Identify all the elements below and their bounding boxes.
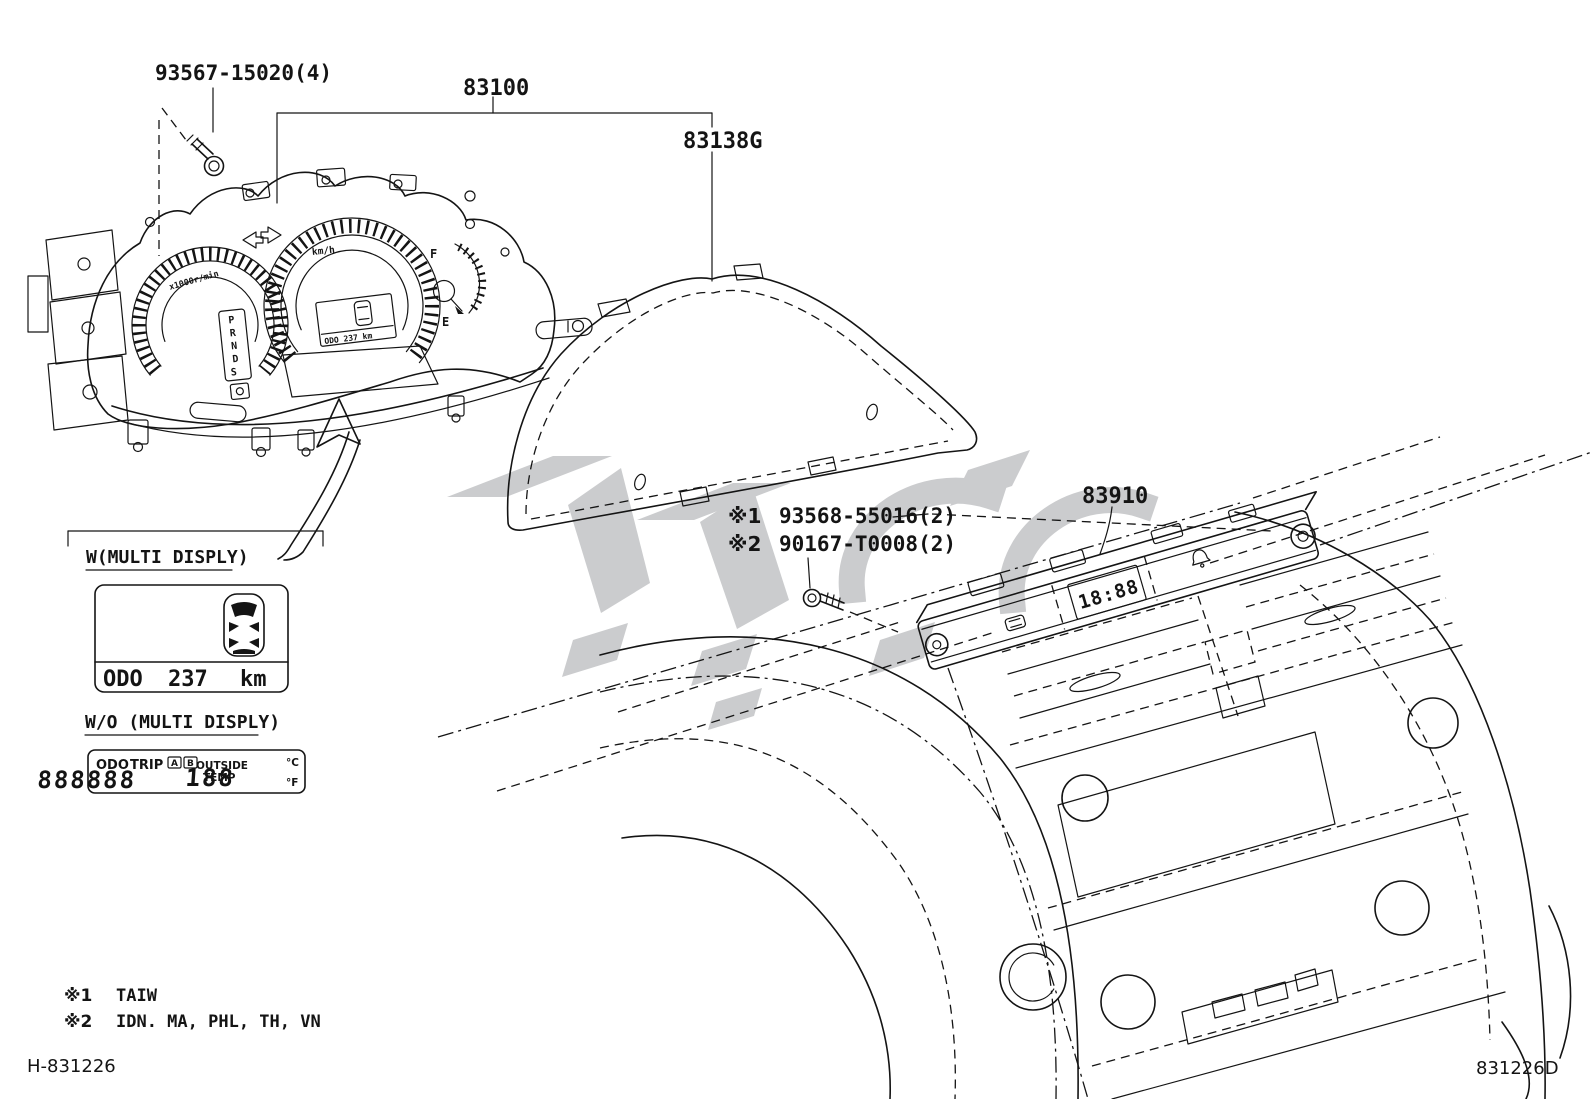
speed-unit-label: km/h: [311, 245, 335, 258]
mini-car-icon: [354, 300, 373, 326]
page-ref-left: H-831226: [27, 1056, 116, 1077]
svg-text:N: N: [231, 341, 238, 353]
footnote-1: ※1 TAIW: [64, 986, 158, 1006]
label-note2: ※2 90167-T0008(2): [728, 532, 956, 556]
multi-display-title: W(MULTI DISPLY): [86, 547, 249, 568]
turn-right-icon: [261, 227, 281, 243]
svg-text:R: R: [229, 328, 237, 340]
svg-text:S: S: [230, 367, 237, 379]
wo-multi-display-section: W/O (MULTI DISPLY) ODO TRIP A B 888888 O…: [36, 712, 305, 794]
lcd-trip-a: A: [171, 759, 178, 769]
svg-text:D: D: [232, 354, 239, 366]
parts-diagram-page: x1000r/min km/h P R N D S ODO 237 km: [0, 0, 1592, 1099]
fuel-empty-label: E: [442, 315, 449, 329]
svg-text:P: P: [228, 315, 235, 327]
label-note1: ※1 93568-55016(2): [728, 504, 956, 528]
lcd-degc-label: °C: [286, 757, 299, 769]
screw-93567-icon: [187, 135, 224, 176]
label-83910: 83910: [1082, 484, 1148, 509]
cluster-mini-display: ODO 237 km: [316, 294, 397, 347]
label-83100: 83100: [463, 76, 529, 101]
watermark-logo: [447, 450, 1142, 730]
car-topview-icon: [224, 594, 264, 656]
label-83138g: 83138G: [683, 129, 762, 154]
footnote-2: ※2 IDN. MA, PHL, TH, VN: [64, 1012, 321, 1032]
gear-indicator: P R N D S: [218, 309, 253, 400]
lcd-temp-digits: 188: [185, 764, 236, 792]
fuel-full-label: F: [430, 247, 437, 261]
multi-display-section: W(MULTI DISPLY) ODO 237 km: [86, 547, 288, 692]
leader-lines: [68, 88, 1272, 632]
lcd-degf-label: °F: [286, 777, 298, 789]
tach-unit-label: x1000r/min: [168, 268, 220, 293]
lcd-odometer-digits: 888888: [36, 766, 137, 794]
multi-odo-row: ODO 237 km: [103, 667, 267, 692]
footnotes: ※1 TAIW ※2 IDN. MA, PHL, TH, VN: [64, 986, 321, 1032]
label-screw-93567: 93567-15020(4): [155, 61, 332, 85]
instrument-cluster-drawing: x1000r/min km/h P R N D S ODO 237 km: [28, 168, 593, 456]
page-ref-right: 831226D: [1476, 1058, 1559, 1079]
unit-car-icon: [1005, 615, 1027, 632]
turn-left-icon: [243, 232, 263, 248]
screw-90167-icon: [804, 590, 845, 611]
wo-display-title: W/O (MULTI DISPLY): [85, 712, 280, 733]
